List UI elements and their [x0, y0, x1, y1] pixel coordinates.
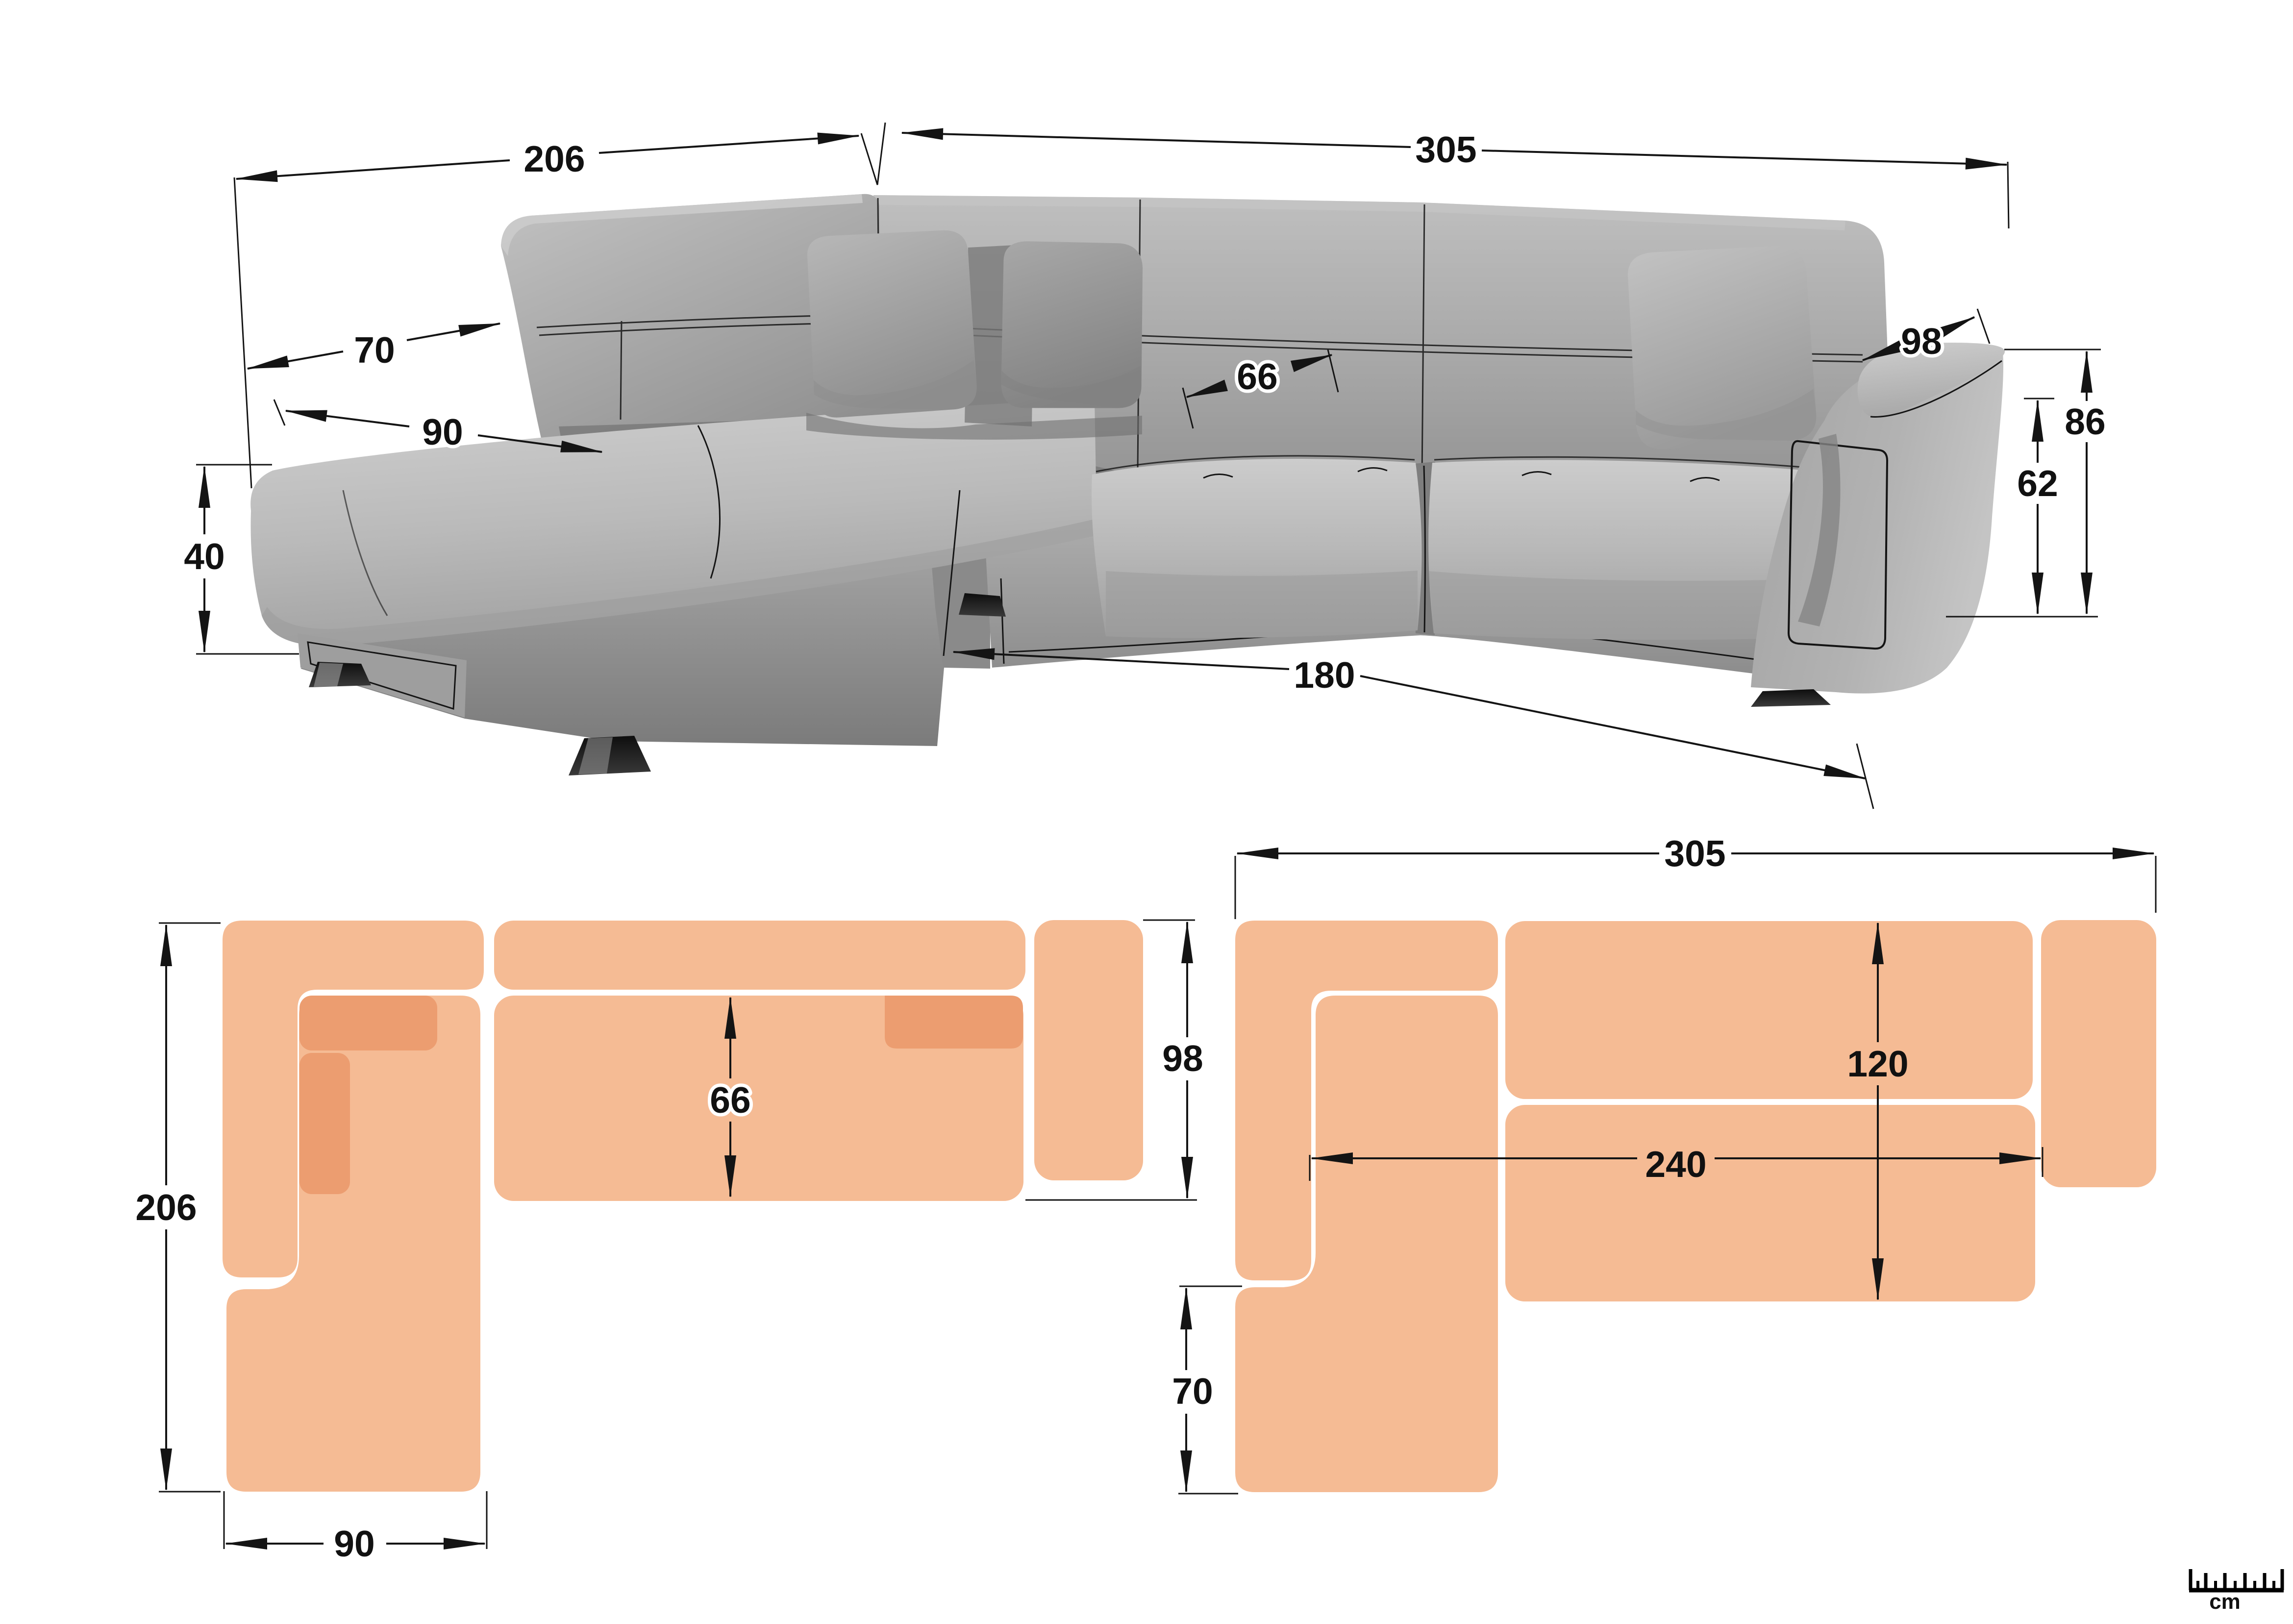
- svg-text:86: 86: [2065, 401, 2105, 442]
- svg-text:62: 62: [2017, 463, 2058, 504]
- svg-text:66: 66: [1237, 356, 1277, 397]
- svg-text:120: 120: [1847, 1043, 1908, 1084]
- svg-text:40: 40: [184, 536, 224, 577]
- svg-text:98: 98: [1901, 321, 1942, 362]
- svg-text:66: 66: [710, 1079, 750, 1121]
- svg-text:90: 90: [422, 411, 463, 452]
- svg-text:70: 70: [354, 329, 395, 371]
- svg-text:70: 70: [1172, 1371, 1213, 1412]
- svg-text:180: 180: [1294, 654, 1355, 696]
- svg-text:240: 240: [1645, 1144, 1706, 1185]
- svg-text:305: 305: [1664, 833, 1725, 874]
- svg-text:305: 305: [1415, 129, 1476, 170]
- svg-text:90: 90: [334, 1523, 374, 1564]
- svg-text:98: 98: [1162, 1038, 1203, 1079]
- svg-text:206: 206: [135, 1187, 197, 1228]
- svg-text:206: 206: [523, 138, 585, 179]
- svg-text:cm: cm: [2209, 1590, 2241, 1614]
